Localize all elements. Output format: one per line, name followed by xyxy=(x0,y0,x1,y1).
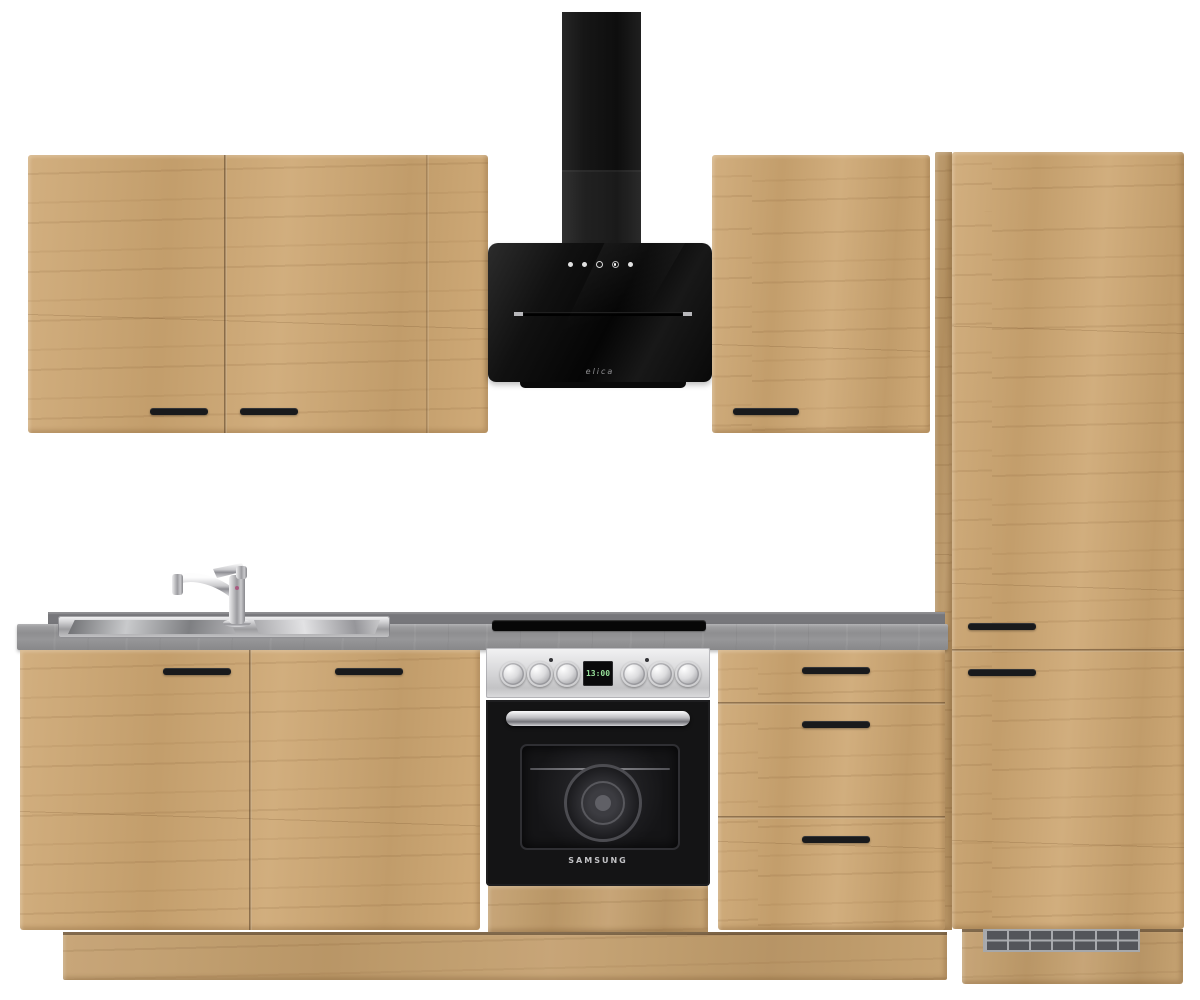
hood-speed1-icon xyxy=(582,262,587,267)
hood-speed2-icon xyxy=(596,261,603,268)
oven-knob-3 xyxy=(554,661,580,687)
oven-display-time: 13:00 xyxy=(586,669,610,678)
oven-knob-2 xyxy=(527,661,553,687)
hood-brand-logo: elica xyxy=(488,367,712,376)
tall-cabinet-door-seam xyxy=(952,649,1184,652)
oven-knob-6 xyxy=(675,661,701,687)
hood-head: elica xyxy=(488,243,712,382)
hood-chimney-joint xyxy=(562,170,641,172)
plinth-toe-kick xyxy=(63,932,947,980)
wall-left-door-seam xyxy=(224,155,227,433)
drawer-seam-2 xyxy=(718,816,945,819)
hood-light-icon xyxy=(628,262,633,267)
oven-indicator-dot-left xyxy=(549,658,553,662)
plinth-vent-grille xyxy=(983,929,1140,952)
kitchen-product-photo: elica xyxy=(0,0,1200,1000)
drawer3-handle xyxy=(802,836,870,843)
tall-cabinet xyxy=(952,152,1184,929)
hood-chimney xyxy=(562,12,641,244)
wall-left-panel-seam xyxy=(426,155,429,433)
wall-left-door2-handle xyxy=(240,408,298,415)
drawer-seam-1 xyxy=(718,702,945,705)
drawer2-handle xyxy=(802,721,870,728)
oven-door: SAMSUNG xyxy=(486,700,710,886)
hood-suction-slot xyxy=(523,312,683,316)
base-door1-handle xyxy=(163,668,231,675)
oven-knob-1 xyxy=(500,661,526,687)
hood-touch-controls xyxy=(488,261,712,268)
hood-power-icon xyxy=(568,262,573,267)
oven-indicator-dot-right xyxy=(645,658,649,662)
wall-right-door-handle xyxy=(733,408,799,415)
oven-control-panel: 13:00 xyxy=(486,648,710,698)
faucet xyxy=(150,548,280,628)
oven-knob-5 xyxy=(648,661,674,687)
hood-speed3-icon xyxy=(612,261,619,268)
oven-display: 13:00 xyxy=(583,661,613,686)
base-left-door-seam xyxy=(249,650,252,930)
tall-lower-door-handle xyxy=(968,669,1036,676)
oven-filler-panel xyxy=(488,886,708,932)
wall-left-door1-handle xyxy=(150,408,208,415)
plinth-shadow xyxy=(63,932,947,935)
cooktop xyxy=(492,620,706,631)
oven-knob-4 xyxy=(621,661,647,687)
oven-fan xyxy=(564,764,642,842)
base-cabinet-left xyxy=(20,650,480,930)
oven-door-handle xyxy=(506,711,690,726)
hood-chimney-lower-section xyxy=(562,172,641,244)
drawer-unit xyxy=(718,650,945,930)
drawer1-handle xyxy=(802,667,870,674)
wall-cabinet-left xyxy=(28,155,488,433)
wall-cabinet-right xyxy=(712,155,930,433)
tall-upper-door-handle xyxy=(968,623,1036,630)
oven-cavity-window xyxy=(520,744,680,850)
hood-bottom-edge xyxy=(520,382,686,388)
base-door2-handle xyxy=(335,668,403,675)
oven-brand-logo: SAMSUNG xyxy=(486,856,710,865)
